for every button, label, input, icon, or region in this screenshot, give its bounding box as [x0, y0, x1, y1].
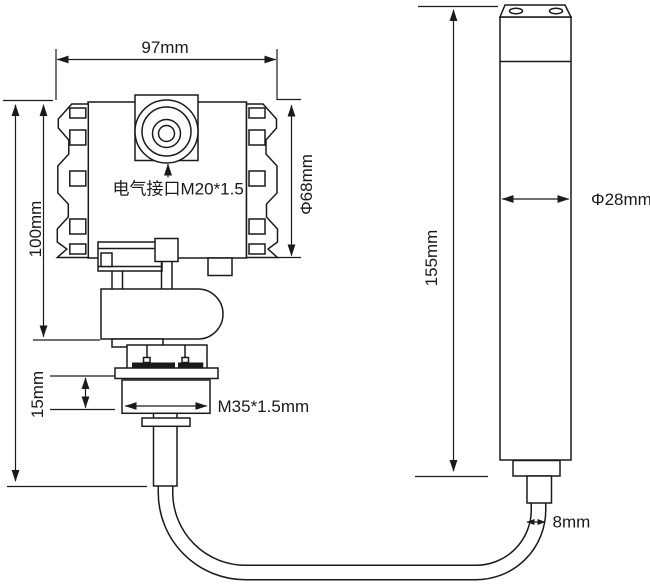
- flange-block: [127, 345, 207, 368]
- dim-label-m35: M35*1.5mm: [218, 397, 310, 416]
- electrical-port-circles: [135, 100, 198, 163]
- dim-label-28mm: Φ28mm: [591, 190, 650, 209]
- probe-neck: [527, 476, 552, 503]
- dim-label-100mm: 100mm: [26, 201, 45, 258]
- probe-flange: [513, 461, 560, 477]
- probe-body: [500, 17, 571, 460]
- flange-plate: [115, 368, 218, 379]
- port-callout-label: 电气接口M20*1.5: [113, 180, 244, 199]
- stem-collar: [142, 418, 190, 426]
- technical-drawing-svg: 97mm 100mm 15mm Φ68mm M35*1.5mm 电气接口M20*…: [0, 0, 650, 584]
- left-side-cap: [57, 104, 88, 258]
- probe-view: [500, 5, 571, 503]
- right-side-cap: [247, 104, 278, 258]
- cable: [166, 486, 539, 573]
- dim-label-8mm: 8mm: [553, 513, 591, 532]
- dim-label-68mm: Φ68mm: [297, 154, 316, 215]
- dimension-drawing: 97mm 100mm 15mm Φ68mm M35*1.5mm 电气接口M20*…: [0, 0, 650, 584]
- dim-label-97mm: 97mm: [141, 38, 188, 57]
- thread-nut: [122, 380, 210, 413]
- mounting-bracket: [101, 289, 223, 339]
- gasket-right: [178, 363, 203, 368]
- gasket-left: [132, 363, 175, 368]
- probe-top-hole-left: [510, 8, 523, 14]
- probe-top-hole-right: [550, 8, 563, 14]
- dim-label-15mm: 15mm: [28, 371, 47, 418]
- dim-label-155mm: 155mm: [422, 230, 441, 287]
